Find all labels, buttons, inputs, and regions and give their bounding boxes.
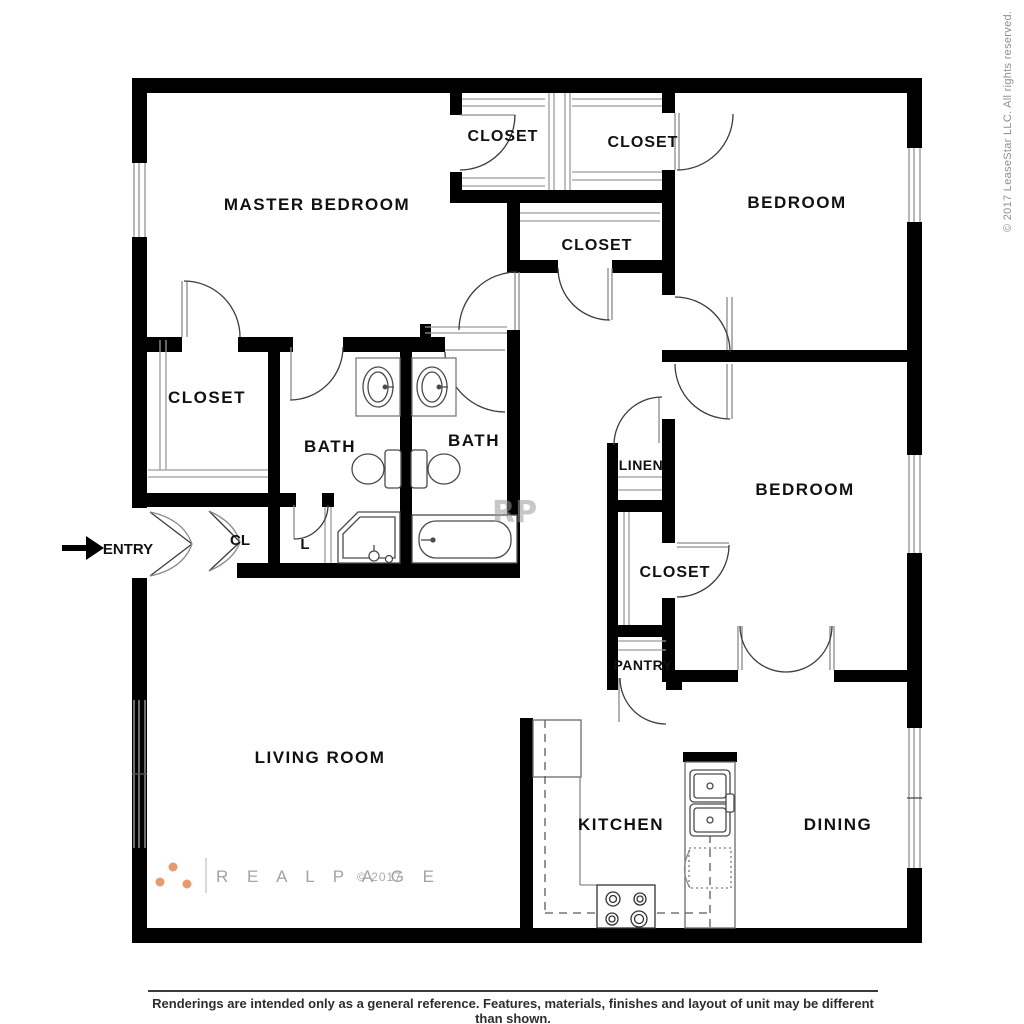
label-closet-master-top: CLOSET — [468, 128, 539, 145]
label-bedroom-right: BEDROOM — [755, 480, 854, 499]
door-master-bedroom — [182, 281, 240, 337]
logo-year: © 2017 — [357, 870, 402, 884]
label-bedroom-top: BEDROOM — [747, 193, 846, 212]
footer-divider — [148, 990, 878, 992]
footer: Renderings are intended only as a genera… — [148, 990, 878, 1024]
footer-disclaimer: Renderings are intended only as a genera… — [148, 996, 878, 1024]
side-copyright: © 2017 LeaseStar LLC. All rights reserve… — [1002, 4, 1014, 232]
vanity-sink-bath2 — [412, 358, 456, 416]
label-entry: ENTRY — [103, 541, 153, 558]
label-bath-2: BATH — [448, 431, 500, 450]
floorplan-drawing: RP MASTER BEDROOM CLOSET CLOSET CLOSET B… — [0, 0, 1024, 1024]
vanity-sink-bath1 — [356, 358, 400, 416]
label-closet-master: CLOSET — [168, 388, 246, 407]
label-l: L — [300, 536, 309, 553]
door-hall-master — [459, 272, 519, 330]
label-closet-hall-top: CLOSET — [608, 134, 679, 151]
door-bedroom-french — [738, 626, 834, 672]
room-labels: MASTER BEDROOM CLOSET CLOSET CLOSET BEDR… — [103, 128, 872, 834]
entry-arrow-icon — [62, 536, 104, 560]
window-bedroom-top-right — [909, 148, 920, 222]
bath-fixtures — [338, 358, 517, 563]
double-sink — [690, 770, 734, 836]
window-dining-right — [907, 728, 922, 868]
toilet-bath1 — [352, 450, 401, 488]
label-bath-1: BATH — [304, 437, 356, 456]
label-dining: DINING — [804, 815, 873, 834]
door-linen — [614, 397, 662, 445]
label-closet-bedroom: CLOSET — [640, 564, 711, 581]
realpage-watermark: RP — [492, 495, 537, 530]
label-closet-hall: CLOSET — [562, 237, 633, 254]
label-pantry: PANTRY — [614, 657, 673, 673]
door-pantry — [619, 678, 666, 724]
label-living-room: LIVING ROOM — [255, 748, 386, 767]
logo-dot-1 — [169, 863, 178, 872]
logo-dot-2 — [156, 878, 165, 887]
window-living-left — [132, 700, 147, 848]
realpage-logo: R E A L P A G E © 2017 — [156, 858, 442, 893]
stove — [597, 885, 655, 928]
label-linen: LINEN — [619, 457, 664, 473]
window-master-left — [134, 163, 145, 237]
door-closet-hall-top — [675, 113, 733, 170]
door-l-closet — [294, 505, 328, 539]
label-cl: CL — [230, 532, 250, 549]
refrigerator — [533, 720, 581, 777]
logo-wordmark: R E A L P A G E — [216, 867, 441, 886]
window-bedroom-right — [909, 455, 920, 553]
door-closet-hall — [558, 268, 612, 320]
door-bedroom-right — [675, 364, 732, 419]
logo-dot-3 — [183, 880, 192, 889]
door-entry — [150, 512, 192, 576]
door-bedroom-top — [675, 297, 732, 352]
toilet-bath2 — [411, 450, 460, 488]
shower-bath1 — [338, 512, 400, 563]
label-kitchen: KITCHEN — [578, 815, 664, 834]
floorplan-page: RP MASTER BEDROOM CLOSET CLOSET CLOSET B… — [0, 0, 1024, 1024]
label-master-bedroom: MASTER BEDROOM — [224, 195, 410, 214]
kitchen-island — [685, 762, 736, 928]
door-bath-1 — [290, 347, 343, 400]
